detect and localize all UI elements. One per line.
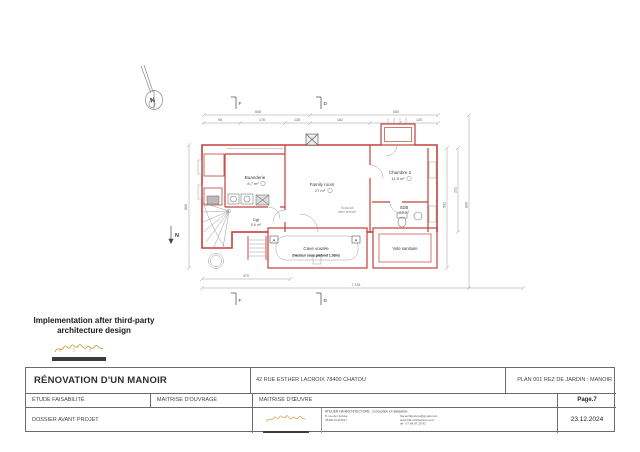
cabinet-small bbox=[207, 196, 219, 204]
washer-dryer bbox=[228, 194, 253, 204]
section-marker-labels: F D F D bbox=[239, 101, 328, 304]
firm-logo-small-bar bbox=[263, 431, 309, 433]
svg-text:11.8 m²: 11.8 m² bbox=[391, 176, 405, 181]
title-block: RÉNOVATION D'UN MANOIR 42 RUE ESTHER LAC… bbox=[25, 367, 615, 432]
room-vide: Vide sanitaire bbox=[392, 246, 418, 251]
toilet bbox=[397, 213, 407, 227]
firm-name-line: ATELIER HA ARCHITECTURE : conception et … bbox=[325, 410, 555, 414]
room-chambre2: Chambre 2 11.8 m² bbox=[389, 170, 412, 181]
firm-logo-squiggle bbox=[52, 340, 106, 356]
dim-top-right: 650 bbox=[393, 110, 399, 114]
svg-text:SDB: SDB bbox=[400, 205, 409, 210]
sink bbox=[414, 212, 422, 220]
section-marker-d-top bbox=[316, 97, 321, 109]
firm-address-2: 78400 CHATOU bbox=[325, 419, 400, 423]
svg-text:27 m²: 27 m² bbox=[315, 188, 326, 193]
north-arrow-label: N bbox=[175, 233, 179, 239]
marker-f-bottom-label: F bbox=[239, 298, 242, 304]
dim-seg-0: 95 bbox=[218, 118, 222, 122]
north-compass: N bbox=[141, 65, 163, 110]
project-title: RÉNOVATION D'UN MANOIR bbox=[26, 368, 251, 394]
phase-label: DOSSIER AVANT PROJET bbox=[26, 408, 253, 433]
svg-text:8.7 m²: 8.7 m² bbox=[247, 181, 259, 186]
exterior-stairs bbox=[248, 240, 266, 256]
firm-logo bbox=[52, 340, 106, 361]
svg-text:Dgt: Dgt bbox=[253, 217, 260, 222]
dim-bottom-short: 470 bbox=[243, 274, 249, 278]
page-number: Page.7 bbox=[558, 394, 616, 408]
marker-d-top-label: D bbox=[324, 101, 328, 107]
marker-d-bottom-label: D bbox=[324, 298, 328, 304]
dim-right-a: 592 bbox=[443, 202, 447, 208]
svg-text:(hauteur sous plafond 1.93m): (hauteur sous plafond 1.93m) bbox=[292, 254, 339, 258]
chimney bbox=[306, 134, 318, 145]
section-marker-d-bottom bbox=[316, 293, 321, 305]
dim-seg-4: 120 bbox=[416, 118, 422, 122]
room-buanderie: Buanderie 8.7 m² bbox=[245, 175, 266, 186]
marker-f-top-label: F bbox=[239, 101, 242, 107]
cut-markers: A A bbox=[270, 236, 360, 243]
svg-text:Family room: Family room bbox=[310, 182, 335, 187]
firm-contact-block: ATELIER HA ARCHITECTURE : conception et … bbox=[325, 410, 555, 426]
room-cave: Cave voutée (hauteur sous plafond 1.93m) bbox=[292, 246, 339, 258]
dim-top-left: 608 bbox=[255, 110, 261, 114]
svg-text:Vide sanitaire: Vide sanitaire bbox=[392, 246, 418, 251]
firm-logo-small-squiggle bbox=[263, 412, 309, 425]
cut-marker-a2: A bbox=[355, 238, 358, 243]
cut-marker-a1: A bbox=[273, 238, 276, 243]
firm-info-cell: ATELIER HA ARCHITECTURE : conception et … bbox=[253, 408, 558, 433]
dim-seg-2: 128 bbox=[294, 118, 300, 122]
firm-logo-bar bbox=[52, 357, 106, 361]
room-dgt: Dgt 5.6 m² bbox=[251, 217, 262, 227]
dim-seg-1: 178 bbox=[259, 118, 265, 122]
note-line1: Implementation after third-party bbox=[14, 316, 174, 326]
firm-logo-small bbox=[263, 412, 309, 433]
svg-text:semi enterré: semi enterré bbox=[338, 210, 356, 214]
room-labels: Buanderie 8.7 m² Family room 27 m² Sous-… bbox=[245, 170, 419, 258]
room-family: Family room 27 m² Sous-sol semi enterré bbox=[310, 182, 356, 214]
section-marker-f-bottom bbox=[231, 293, 236, 305]
dim-right-b: 231 bbox=[454, 187, 458, 193]
date-value: 23.12.2024 bbox=[558, 408, 616, 433]
svg-text:Chambre 2: Chambre 2 bbox=[389, 170, 412, 175]
firm-cell-divider bbox=[321, 408, 322, 433]
note-line2: architecture design bbox=[14, 326, 174, 336]
dim-seg-3: 162 bbox=[337, 118, 343, 122]
dim-left: 860 bbox=[184, 204, 188, 210]
plan-reference: PLAN 001 REZ DE JARDIN : MANOIR bbox=[506, 368, 616, 394]
document-page: N bbox=[0, 0, 640, 452]
project-address: 42 RUE ESTHER LACROIX 78400 CHATOU bbox=[251, 368, 506, 394]
dimension-lines bbox=[187, 113, 525, 290]
svg-text:3.5 m²: 3.5 m² bbox=[399, 211, 410, 215]
third-party-note: Implementation after third-party archite… bbox=[14, 316, 174, 336]
well bbox=[209, 254, 224, 269]
label-etude-faisabilite: ÉTUDE FAISABILITÉ bbox=[26, 394, 151, 408]
firm-phone: tél : 07 68 87 29 92 bbox=[400, 423, 437, 427]
svg-text:5.6 m²: 5.6 m² bbox=[251, 223, 262, 227]
north-arrow: N bbox=[168, 226, 179, 244]
label-maitrise-oeuvre: MAITRISE D'ŒUVRE bbox=[253, 394, 558, 408]
dim-bottom-long: 7.134 bbox=[352, 283, 361, 287]
svg-text:Cave voutée: Cave voutée bbox=[303, 246, 329, 251]
section-marker-f-top bbox=[231, 97, 236, 109]
label-maitrise-ouvrage: MAITRISE D'OUVRAGE bbox=[151, 394, 253, 408]
compass-n-label: N bbox=[150, 97, 157, 105]
boiler bbox=[256, 195, 269, 205]
stairs bbox=[203, 203, 231, 248]
dim-right-c: 860 bbox=[465, 202, 469, 208]
room-sdb: SDB 3.5 m² bbox=[399, 205, 410, 215]
dimension-labels: 608 650 95 178 128 162 120 860 592 231 8… bbox=[184, 110, 469, 287]
svg-text:Buanderie: Buanderie bbox=[245, 175, 266, 180]
fixtures bbox=[207, 134, 422, 227]
